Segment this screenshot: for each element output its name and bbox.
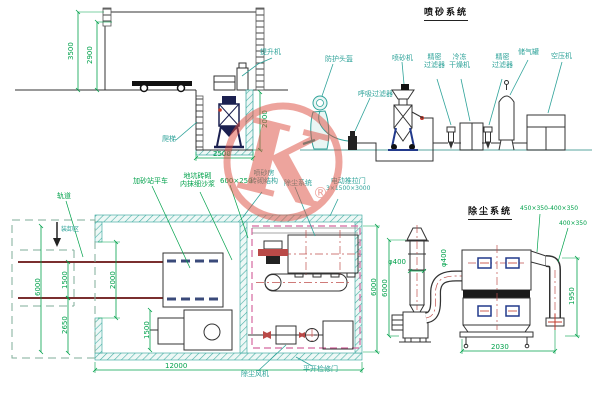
label-loading-zone: 装卸区 (61, 226, 79, 233)
label-protective-helmet: 防护头盔 (325, 55, 353, 63)
dust-system-title: 除尘系统 (468, 207, 512, 220)
dim-plan-width: 6000 (34, 278, 42, 296)
dim-duct-size: 600×250 (220, 177, 253, 185)
dim-transition-size: 450×350-400×350 (520, 205, 578, 212)
label-track: 轨道 (57, 192, 71, 200)
label-air-compressor: 空压机 (551, 52, 572, 60)
label-air-tank: 储气罐 (518, 48, 539, 56)
dust-system-view (389, 214, 580, 354)
dim-dust-room-width: 6000 (370, 278, 378, 296)
dim-pit-depth: 2000 (261, 110, 269, 128)
dim-door-opening: 2000 (109, 271, 117, 289)
dim-plan-length: 12000 (165, 362, 187, 370)
label-blast-machine: 喷砂机 (392, 54, 413, 62)
label-sliding-door: 电动推拉门3×1500×3000 (326, 177, 370, 193)
cad-drawing-canvas: 喷砂系统 防护头盔 呼吸过滤器 喷砂机 精密过滤器 冷冻干燥机 精密过滤器 储气… (0, 0, 600, 400)
label-precision-filter-1: 精密过滤器 (424, 53, 445, 70)
label-refrigerated-dryer: 冷冻干燥机 (449, 53, 470, 70)
dim-total-height: 3500 (67, 42, 75, 60)
dim-pit-width: 2500 (213, 150, 231, 158)
label-dust-fan: 除尘风机 (241, 370, 269, 378)
dim-stack-diameter: φ400 (388, 258, 406, 266)
label-hoist: 提升机 (260, 48, 281, 56)
dim-machine-bay: 1500 (143, 321, 151, 339)
label-breathing-filter: 呼吸过滤器 (358, 90, 393, 98)
dim-outlet-size: 400×350 (559, 220, 587, 227)
label-precision-filter-2: 精密过滤器 (492, 53, 513, 70)
dim-collector-span: 2030 (491, 343, 509, 351)
blast-system-title: 喷砂系统 (424, 8, 468, 21)
dim-south-offset: 2650 (61, 316, 69, 334)
dim-dust-height: 6000 (381, 279, 389, 297)
dim-rail-gauge: 1500 (61, 271, 69, 289)
label-dust-system: 除尘系统 (284, 179, 312, 187)
flow-diagram (300, 60, 592, 161)
dim-duct-diameter: φ400 (440, 249, 448, 267)
dim-drop-height: 1950 (568, 287, 576, 305)
dim-inner-height: 2900 (86, 46, 94, 64)
label-blast-room: 喷砂房砖砌结构 (250, 169, 278, 186)
label-access-door: 平开检修门 (303, 365, 338, 373)
label-sand-car: 加砂站平车 (133, 177, 168, 185)
elevation-view (15, 8, 288, 161)
label-pit-note: 地坑砖砌内抹细沙浆 (180, 172, 215, 189)
label-ladder: 爬梯 (162, 135, 176, 143)
